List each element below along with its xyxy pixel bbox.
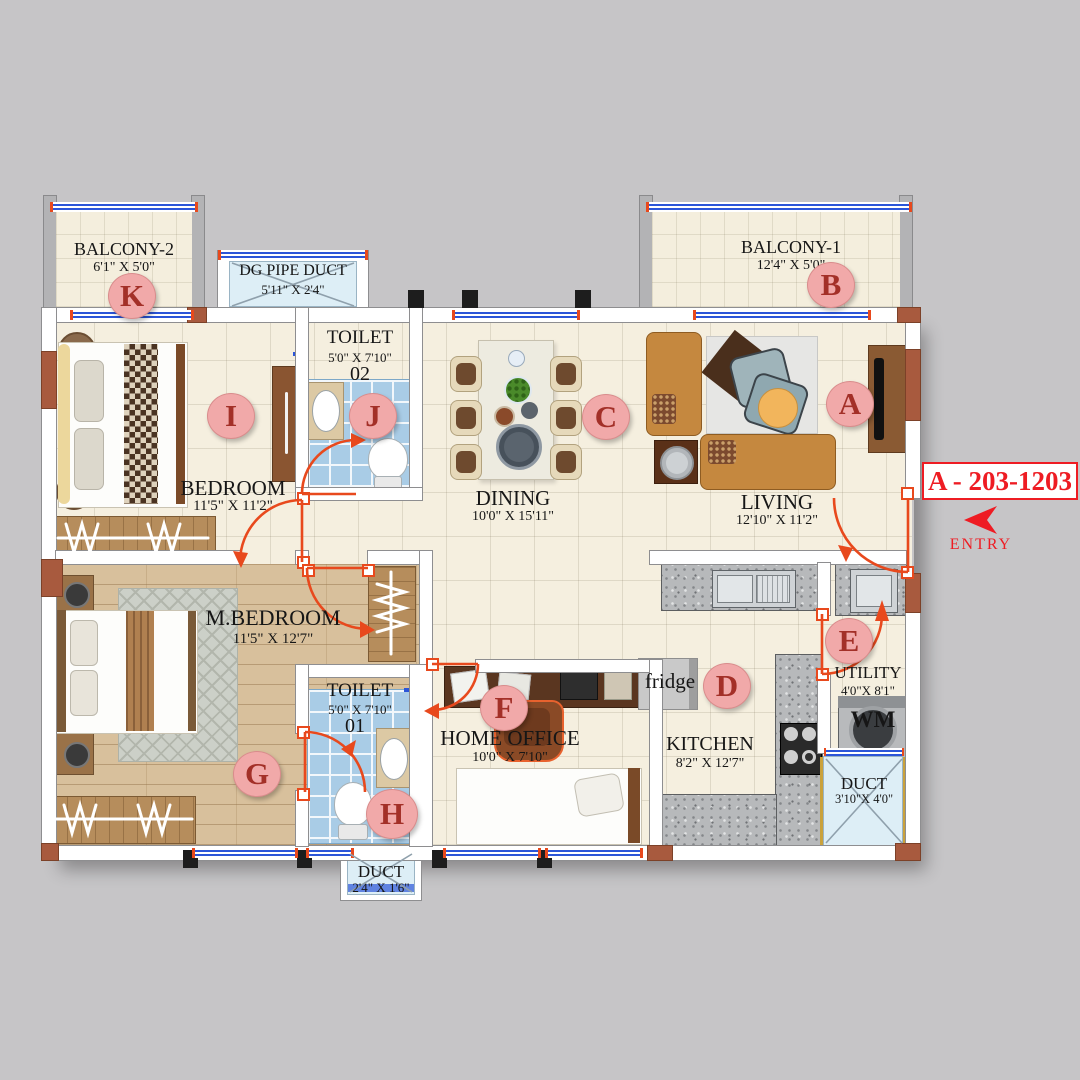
- pier: [896, 844, 920, 860]
- balcony1-railing: [646, 202, 912, 212]
- marker-letter: K: [120, 278, 144, 314]
- coffee-table-platter: [660, 446, 694, 480]
- marker-bedroom: I: [207, 393, 255, 439]
- toilet1-basin: [380, 738, 408, 780]
- toilet1-label: TOILET: [312, 681, 408, 701]
- desk-laptop: [560, 672, 598, 700]
- sofa-pillow: [708, 440, 736, 464]
- dining-chair: [550, 444, 582, 480]
- bed-pillow: [573, 772, 625, 817]
- column: [408, 290, 424, 308]
- utility-duct-dims: 3'10"X 4'0": [820, 793, 908, 806]
- office-bed-frame: [628, 768, 640, 843]
- balcony1-dims: 12'4" X 5'0": [701, 259, 881, 274]
- wall-toilet2-bottom: [296, 488, 422, 500]
- bed-pillow: [70, 670, 98, 716]
- wall-toilet1-top: [296, 665, 422, 677]
- door-frame: [297, 726, 310, 739]
- bed-pillow: [74, 428, 104, 490]
- marker-living: A: [826, 381, 874, 427]
- dining-chair: [450, 444, 482, 480]
- table-plate: [508, 350, 525, 367]
- living-label: LIVING: [722, 491, 832, 513]
- bottom-duct-dims: 2'4" X 1'6": [338, 881, 424, 895]
- kitchen-drainboard: [756, 575, 790, 603]
- wall-living-kitchen: [650, 551, 906, 564]
- marker-letter: B: [821, 267, 842, 303]
- balcony1-post: [640, 196, 652, 312]
- marker-letter: I: [225, 398, 237, 434]
- sofa-pillow: [652, 394, 676, 424]
- lamp: [64, 582, 90, 608]
- column: [462, 290, 478, 308]
- office-window: [443, 848, 541, 858]
- balcony1-label: BALCONY-1: [691, 238, 891, 257]
- dining-label: DINING: [458, 487, 568, 509]
- kitchen-counter-bottom: [662, 795, 776, 845]
- bed-pillow: [74, 360, 104, 422]
- wall-utility-left: [818, 675, 830, 753]
- pier: [648, 846, 672, 860]
- toilet2-wc: [368, 438, 408, 480]
- dg-duct-dims: 5'11" X 2'4": [228, 283, 358, 297]
- burner: [784, 727, 798, 741]
- dining-chair: [450, 356, 482, 392]
- lamp: [64, 742, 90, 768]
- dining-window: [452, 310, 580, 320]
- entry-label: ENTRY: [936, 536, 1026, 554]
- dining-chair: [450, 400, 482, 436]
- wall-toilet1-left: [296, 665, 308, 733]
- burner: [784, 750, 798, 764]
- column: [575, 290, 591, 308]
- master-bed-footboard: [188, 611, 196, 731]
- door-frame: [426, 658, 439, 671]
- marker-letter: J: [365, 398, 381, 434]
- bottom-duct-label: DUCT: [343, 863, 419, 881]
- utility-label: UTILITY: [826, 664, 910, 682]
- master-bedroom-dims: 11'5" X 12'7": [213, 632, 333, 648]
- door-frame: [302, 564, 315, 577]
- home-office-label: HOME OFFICE: [435, 727, 585, 749]
- wall-mbedroom-top: [368, 551, 422, 564]
- marker-letter: E: [839, 623, 860, 659]
- utility-dims: 4'0"X 8'1": [830, 684, 906, 698]
- dresser: [368, 566, 416, 662]
- toilet2-basin: [312, 390, 340, 432]
- dg-duct-window: [218, 250, 368, 260]
- master-bed-headboard: [56, 610, 66, 732]
- fridge-label: fridge: [628, 670, 712, 692]
- marker-letter: G: [245, 756, 269, 792]
- wall-toilet2-dining: [410, 308, 422, 500]
- marker-balcony1: B: [807, 262, 855, 308]
- marker-home-office: F: [480, 685, 528, 731]
- floor-plan: BALCONY-2 6'1" X 5'0" DG PIPE DUCT 5'11"…: [0, 0, 1080, 1080]
- door-frame: [297, 788, 310, 801]
- living-balcony-door: [693, 310, 871, 320]
- marker-utility: E: [825, 618, 873, 664]
- table-plant-bowl: [504, 376, 532, 404]
- entry-arrow-icon: [964, 506, 997, 534]
- toilet2-number: 02: [330, 364, 390, 385]
- utility-duct-label: DUCT: [826, 775, 902, 793]
- bed-pillow: [70, 620, 98, 666]
- door-frame: [901, 566, 914, 579]
- bedroom-label: BEDROOM: [153, 477, 313, 499]
- door-frame: [901, 487, 914, 500]
- home-office-dims: 10'0" X 7'10": [455, 751, 565, 766]
- dg-duct-label: DG PIPE DUCT: [220, 263, 366, 280]
- marker-toilet2: J: [349, 393, 397, 439]
- pier: [906, 350, 920, 420]
- pier: [906, 574, 920, 612]
- kitchen-dims: 8'2" X 12'7": [665, 757, 755, 772]
- living-dims: 12'10" X 11'2": [712, 514, 842, 529]
- wall-outer-right: [906, 574, 920, 860]
- balcony1-post: [900, 196, 912, 312]
- bedroom-dims: 11'5" X 11'2": [153, 499, 313, 515]
- cupboard-handle: [285, 392, 288, 454]
- table-platter: [496, 424, 542, 470]
- master-bedroom-label: M.BEDROOM: [198, 606, 348, 629]
- marker-letter: D: [716, 668, 738, 704]
- mbedroom-window: [192, 848, 298, 858]
- marker-toilet1: H: [366, 789, 418, 839]
- door-frame: [816, 608, 829, 621]
- tv: [874, 358, 884, 440]
- utility-duct-vent: [824, 748, 904, 756]
- toilet1-wc-tank: [338, 824, 368, 840]
- unit-code-badge: A - 203-1203: [922, 462, 1078, 500]
- dining-chair: [550, 356, 582, 392]
- bed-drape: [126, 611, 154, 731]
- pier: [42, 352, 56, 408]
- office-window: [545, 848, 643, 858]
- balcony2-label: BALCONY-2: [44, 240, 204, 259]
- door-frame: [362, 564, 375, 577]
- pier: [42, 560, 62, 596]
- dining-chair: [550, 400, 582, 436]
- wall-bedroom-bottom: [56, 551, 240, 564]
- marker-letter: C: [595, 399, 617, 435]
- washing-machine-label: WM: [840, 708, 906, 732]
- wall-bedroom-toilet2: [296, 308, 308, 500]
- kitchen-sink-bowl: [717, 575, 753, 603]
- kitchen-label: KITCHEN: [660, 734, 760, 755]
- pier: [42, 844, 58, 860]
- bed-bolster: [58, 344, 70, 504]
- balcony2-railing: [50, 202, 198, 212]
- utility-sink-bowl: [856, 575, 892, 607]
- pier: [898, 308, 920, 322]
- table-bowl: [521, 402, 538, 419]
- marker-kitchen: D: [703, 663, 751, 709]
- marker-dining: C: [582, 394, 630, 440]
- marker-letter: H: [380, 796, 404, 832]
- dining-dims: 10'0" X 15'11": [448, 510, 578, 525]
- marker-letter: A: [839, 386, 861, 422]
- marker-letter: F: [495, 690, 514, 726]
- marker-master-bedroom: G: [233, 751, 281, 797]
- toilet2-label: TOILET: [312, 328, 408, 348]
- ottoman: [758, 388, 798, 428]
- burner: [802, 727, 816, 741]
- toilet1-number: 01: [325, 716, 385, 737]
- marker-balcony2: K: [108, 273, 156, 319]
- master-wardrobe: [52, 796, 196, 844]
- toilet1-window: [306, 848, 354, 858]
- burner: [802, 750, 816, 764]
